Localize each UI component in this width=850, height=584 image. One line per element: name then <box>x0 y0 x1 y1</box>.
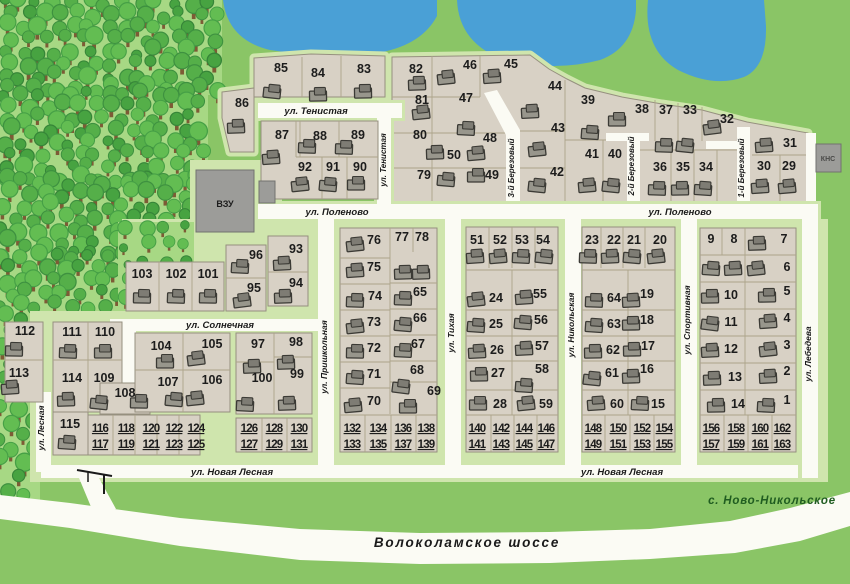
svg-text:67: 67 <box>411 337 425 351</box>
svg-text:141: 141 <box>469 439 487 451</box>
svg-text:116: 116 <box>92 423 109 435</box>
svg-text:7: 7 <box>781 232 788 246</box>
svg-text:128: 128 <box>266 423 284 435</box>
svg-text:ул. Пришкольная: ул. Пришкольная <box>319 320 329 395</box>
svg-text:144: 144 <box>516 423 534 435</box>
svg-text:123: 123 <box>166 439 183 451</box>
svg-text:126: 126 <box>241 423 258 435</box>
svg-text:58: 58 <box>535 362 549 376</box>
svg-text:16: 16 <box>640 362 654 376</box>
svg-text:121: 121 <box>143 439 161 451</box>
svg-text:84: 84 <box>311 66 325 80</box>
svg-text:3-й Березовый: 3-й Березовый <box>507 138 516 197</box>
svg-text:83: 83 <box>357 62 371 76</box>
svg-text:ул. Тенистая: ул. Тенистая <box>283 106 348 117</box>
svg-text:22: 22 <box>607 233 621 247</box>
svg-text:1-й Березовый: 1-й Березовый <box>737 138 746 197</box>
svg-text:111: 111 <box>62 325 82 339</box>
svg-text:108: 108 <box>115 386 136 400</box>
svg-text:53: 53 <box>515 233 529 247</box>
svg-text:ул. Поленово: ул. Поленово <box>304 207 368 218</box>
svg-text:107: 107 <box>158 375 179 389</box>
svg-text:27: 27 <box>491 366 505 380</box>
svg-text:56: 56 <box>534 313 548 327</box>
svg-text:76: 76 <box>367 233 381 247</box>
svg-text:ул. Новая Лесная: ул. Новая Лесная <box>580 467 663 478</box>
svg-text:125: 125 <box>188 439 206 451</box>
svg-text:11: 11 <box>724 315 737 329</box>
svg-text:98: 98 <box>289 335 303 349</box>
svg-text:ул. Поленово: ул. Поленово <box>647 207 711 218</box>
svg-text:110: 110 <box>95 325 115 339</box>
svg-text:127: 127 <box>241 439 258 451</box>
svg-text:74: 74 <box>368 289 382 303</box>
svg-text:21: 21 <box>627 233 641 247</box>
svg-text:145: 145 <box>516 439 534 451</box>
svg-text:96: 96 <box>249 248 263 262</box>
svg-text:151: 151 <box>610 439 628 451</box>
svg-text:40: 40 <box>608 147 622 161</box>
svg-text:КНС: КНС <box>821 156 835 163</box>
svg-text:57: 57 <box>535 339 549 353</box>
svg-text:9: 9 <box>708 232 715 246</box>
svg-text:ул. Новая Лесная: ул. Новая Лесная <box>190 467 273 478</box>
svg-text:113: 113 <box>9 366 29 380</box>
svg-text:10: 10 <box>724 288 738 302</box>
svg-text:2: 2 <box>784 364 791 378</box>
svg-text:5: 5 <box>784 284 791 298</box>
svg-text:73: 73 <box>367 315 381 329</box>
svg-text:86: 86 <box>235 96 249 110</box>
svg-text:19: 19 <box>640 287 654 301</box>
svg-text:39: 39 <box>581 93 595 107</box>
svg-text:152: 152 <box>634 423 651 435</box>
svg-text:119: 119 <box>118 439 135 451</box>
svg-text:42: 42 <box>550 165 564 179</box>
svg-text:15: 15 <box>651 397 665 411</box>
svg-text:146: 146 <box>538 423 555 435</box>
svg-text:61: 61 <box>605 366 619 380</box>
svg-text:66: 66 <box>413 311 427 325</box>
svg-text:99: 99 <box>290 367 304 381</box>
svg-text:81: 81 <box>415 93 429 107</box>
svg-text:132: 132 <box>344 423 361 435</box>
svg-text:ул. Спортивная: ул. Спортивная <box>682 285 692 355</box>
svg-text:6: 6 <box>784 260 791 274</box>
svg-text:28: 28 <box>493 397 507 411</box>
svg-text:117: 117 <box>92 439 109 451</box>
svg-text:69: 69 <box>427 384 441 398</box>
svg-text:103: 103 <box>132 267 153 281</box>
svg-text:101: 101 <box>198 267 219 281</box>
svg-text:77: 77 <box>395 230 409 244</box>
svg-text:8: 8 <box>731 232 738 246</box>
svg-text:29: 29 <box>782 159 796 173</box>
svg-text:38: 38 <box>635 102 649 116</box>
svg-text:135: 135 <box>370 439 388 451</box>
svg-text:71: 71 <box>367 367 381 381</box>
svg-text:147: 147 <box>538 439 555 451</box>
svg-text:88: 88 <box>313 129 327 143</box>
svg-text:87: 87 <box>275 128 289 142</box>
svg-text:47: 47 <box>459 91 473 105</box>
svg-text:109: 109 <box>94 371 115 385</box>
svg-text:82: 82 <box>409 62 423 76</box>
svg-text:95: 95 <box>247 281 261 295</box>
svg-text:80: 80 <box>413 128 427 142</box>
svg-text:78: 78 <box>415 230 429 244</box>
svg-text:ул. Лебедева: ул. Лебедева <box>803 326 813 383</box>
svg-text:92: 92 <box>298 160 312 174</box>
svg-text:ВЗУ: ВЗУ <box>216 199 234 209</box>
svg-text:134: 134 <box>370 423 388 435</box>
svg-text:154: 154 <box>656 423 674 435</box>
svg-text:89: 89 <box>351 128 365 142</box>
svg-text:55: 55 <box>533 287 547 301</box>
svg-text:140: 140 <box>469 423 486 435</box>
svg-text:37: 37 <box>659 103 673 117</box>
svg-text:157: 157 <box>703 439 720 451</box>
svg-text:18: 18 <box>640 313 654 327</box>
svg-text:139: 139 <box>418 439 435 451</box>
svg-text:124: 124 <box>188 423 206 435</box>
svg-text:94: 94 <box>289 276 303 290</box>
svg-text:32: 32 <box>720 112 734 126</box>
svg-text:50: 50 <box>447 148 461 162</box>
svg-text:13: 13 <box>728 370 742 384</box>
svg-text:79: 79 <box>417 168 431 182</box>
svg-text:63: 63 <box>607 317 621 331</box>
svg-text:24: 24 <box>489 291 503 305</box>
svg-text:155: 155 <box>656 439 674 451</box>
svg-text:97: 97 <box>251 337 265 351</box>
svg-text:163: 163 <box>774 439 791 451</box>
svg-text:30: 30 <box>757 159 771 173</box>
svg-text:54: 54 <box>536 233 550 247</box>
svg-text:ул. Лесная: ул. Лесная <box>36 405 46 451</box>
svg-text:60: 60 <box>610 397 624 411</box>
svg-text:75: 75 <box>367 260 381 274</box>
svg-text:14: 14 <box>731 397 745 411</box>
svg-text:68: 68 <box>410 363 424 377</box>
svg-text:45: 45 <box>504 57 518 71</box>
svg-text:122: 122 <box>166 423 183 435</box>
svg-text:161: 161 <box>752 439 770 451</box>
svg-text:33: 33 <box>683 103 697 117</box>
svg-text:41: 41 <box>585 147 599 161</box>
svg-text:160: 160 <box>752 423 769 435</box>
svg-text:159: 159 <box>728 439 745 451</box>
svg-text:20: 20 <box>653 233 667 247</box>
svg-text:130: 130 <box>291 423 308 435</box>
svg-text:43: 43 <box>551 121 565 135</box>
svg-text:51: 51 <box>470 233 484 247</box>
svg-text:62: 62 <box>606 343 620 357</box>
svg-text:153: 153 <box>634 439 651 451</box>
svg-text:2-й Березовый: 2-й Березовый <box>627 136 636 196</box>
svg-text:112: 112 <box>15 324 35 338</box>
svg-text:137: 137 <box>395 439 412 451</box>
svg-text:156: 156 <box>703 423 720 435</box>
svg-text:106: 106 <box>202 373 223 387</box>
svg-text:120: 120 <box>143 423 160 435</box>
svg-text:ул. Тихая: ул. Тихая <box>446 313 456 353</box>
svg-text:25: 25 <box>489 317 503 331</box>
svg-text:133: 133 <box>344 439 361 451</box>
svg-text:34: 34 <box>699 160 713 174</box>
svg-text:с. Ново-Никольское: с. Ново-Никольское <box>708 495 836 507</box>
svg-text:23: 23 <box>585 233 599 247</box>
svg-text:ул. Тенистая: ул. Тенистая <box>379 133 388 188</box>
svg-text:65: 65 <box>413 285 427 299</box>
svg-text:44: 44 <box>548 79 562 93</box>
svg-text:49: 49 <box>485 168 499 182</box>
svg-text:102: 102 <box>166 267 187 281</box>
svg-text:59: 59 <box>539 397 553 411</box>
svg-text:4: 4 <box>784 311 791 325</box>
svg-text:48: 48 <box>483 131 497 145</box>
svg-text:52: 52 <box>493 233 507 247</box>
svg-text:100: 100 <box>252 371 273 385</box>
svg-text:36: 36 <box>653 160 667 174</box>
svg-text:35: 35 <box>676 160 690 174</box>
svg-text:114: 114 <box>62 371 82 385</box>
svg-text:91: 91 <box>326 160 340 174</box>
svg-text:105: 105 <box>202 337 223 351</box>
svg-text:3: 3 <box>784 338 791 352</box>
svg-text:93: 93 <box>289 242 303 256</box>
svg-text:70: 70 <box>367 394 381 408</box>
svg-text:64: 64 <box>607 291 621 305</box>
svg-text:129: 129 <box>266 439 283 451</box>
svg-text:85: 85 <box>274 61 288 75</box>
svg-text:26: 26 <box>490 343 504 357</box>
svg-text:150: 150 <box>610 423 627 435</box>
svg-text:Волоколамское шоссе: Волоколамское шоссе <box>374 535 560 550</box>
svg-text:90: 90 <box>353 160 367 174</box>
svg-text:31: 31 <box>783 136 797 150</box>
svg-text:1: 1 <box>784 393 791 407</box>
svg-text:148: 148 <box>585 423 603 435</box>
svg-text:46: 46 <box>463 58 477 72</box>
svg-text:104: 104 <box>151 339 172 353</box>
svg-text:ул. Никольская: ул. Никольская <box>566 293 576 359</box>
svg-text:149: 149 <box>585 439 602 451</box>
svg-text:72: 72 <box>367 341 381 355</box>
svg-text:17: 17 <box>641 339 655 353</box>
svg-text:142: 142 <box>493 423 510 435</box>
svg-text:118: 118 <box>118 423 136 435</box>
svg-text:115: 115 <box>60 417 80 431</box>
svg-text:162: 162 <box>774 423 791 435</box>
svg-text:131: 131 <box>291 439 309 451</box>
svg-text:136: 136 <box>395 423 412 435</box>
svg-text:12: 12 <box>724 342 738 356</box>
svg-text:143: 143 <box>493 439 510 451</box>
svg-text:ул. Солнечная: ул. Солнечная <box>185 320 254 331</box>
svg-text:158: 158 <box>728 423 746 435</box>
svg-text:138: 138 <box>418 423 436 435</box>
